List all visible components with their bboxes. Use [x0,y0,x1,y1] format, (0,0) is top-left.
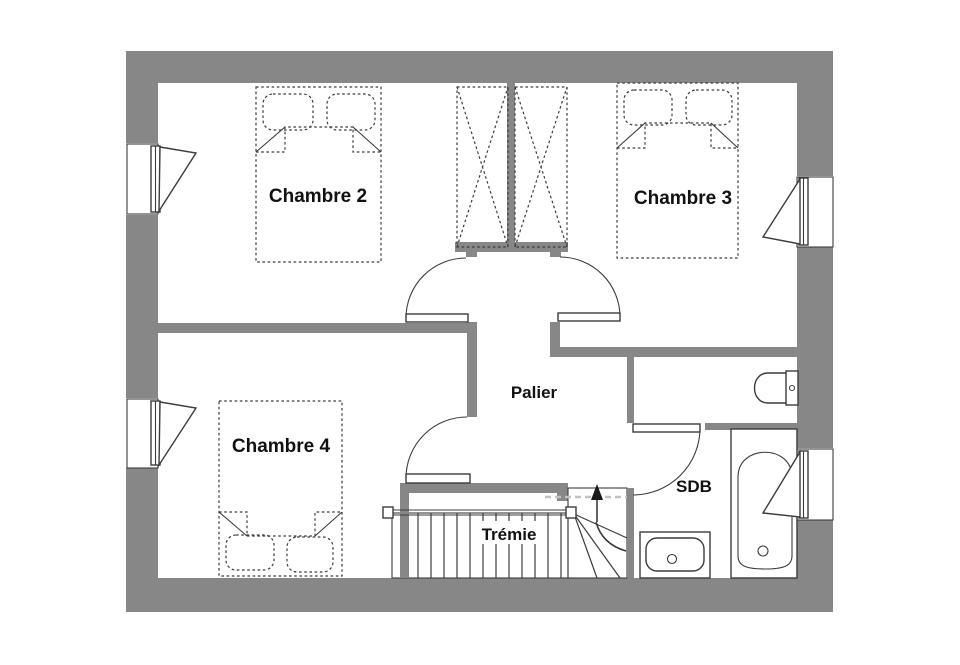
wall-left-upper [126,51,158,143]
stair-newel-post-left [383,507,393,518]
blanket-edge [256,127,381,152]
wall-wc-west [627,357,634,423]
bed-chambre2 [256,87,381,262]
wall-right-lower [797,520,833,612]
window-chambre2 [127,144,196,214]
window-casement [763,179,800,244]
label-chambre4: Chambre 4 [232,436,331,457]
pillow [287,537,333,572]
pillow [624,90,672,125]
sheet-fold [219,512,247,536]
bed-outline [256,87,381,262]
sheet-fold [711,123,738,148]
wall-stub-door3 [550,250,561,257]
wall-stairs-sdb [627,488,634,578]
sheet-fold [315,512,342,536]
door-leaf [633,424,700,432]
door-swing-arc [406,258,466,318]
pillow [327,94,375,130]
bed-chambre4 [219,401,342,576]
door-chambre2 [406,258,468,322]
pillow [263,94,313,130]
wall-left-lower [126,468,158,612]
window-casement [159,402,196,465]
label-chambre2: Chambre 2 [269,186,367,207]
toilet [755,371,799,405]
wall-chambre3-sdb [550,347,798,357]
door-chambre3 [558,257,620,321]
label-chambre3: Chambre 3 [634,188,732,209]
wall-stub-door2 [466,250,477,257]
wall-top [126,51,833,83]
stair-winder-treads [574,514,627,578]
window-chambre4 [127,399,196,468]
sheet-fold [353,127,381,152]
blanket-edge [219,512,342,536]
sink [640,532,710,578]
pillow [226,535,274,570]
stair-newel-post-right [566,507,576,518]
wall-stairs-north-stub [557,483,568,501]
bed-outline [219,401,342,576]
blanket-edge [617,123,738,148]
door-leaf [406,314,468,322]
floor-plan-canvas: Chambre 2 Chambre 3 Chambre 4 Palier Tré… [0,0,960,665]
floor-plan-page: Chambre 2 Chambre 3 Chambre 4 Palier Tré… [0,0,960,665]
door-swing-arc [560,257,620,317]
wall-bottom [126,578,833,612]
wall-stairs-north [400,483,568,493]
wall-closet-divider [507,83,515,247]
stair-direction-arrow [591,484,626,551]
pillow [686,90,732,125]
door-swing-arc [406,417,467,478]
door-leaf [406,474,470,483]
bed-chambre3 [617,83,738,258]
label-tremie: Trémie [482,525,537,544]
closet-left [457,87,508,247]
label-sdb: SDB [676,477,712,496]
bed-outline [617,83,738,258]
wall-left-middle [126,215,158,398]
window-chambre3 [763,177,833,247]
wall-palier-west [467,322,477,417]
wall-right-middle [797,247,833,448]
door-chambre4 [406,417,470,483]
toilet-bowl [755,373,788,403]
wall-right-upper [797,51,833,176]
wall-chambre4-stairs [400,483,409,578]
label-palier: Palier [511,383,558,402]
window-casement [159,147,196,211]
closet-right [515,87,567,247]
sink-basin [646,538,704,571]
sheet-fold [617,123,645,148]
arrowhead-up [591,484,603,500]
wall-chambre2-chambre4 [158,323,477,333]
sheet-fold [256,127,285,152]
toilet-tank [786,371,798,405]
door-leaf [558,313,620,321]
